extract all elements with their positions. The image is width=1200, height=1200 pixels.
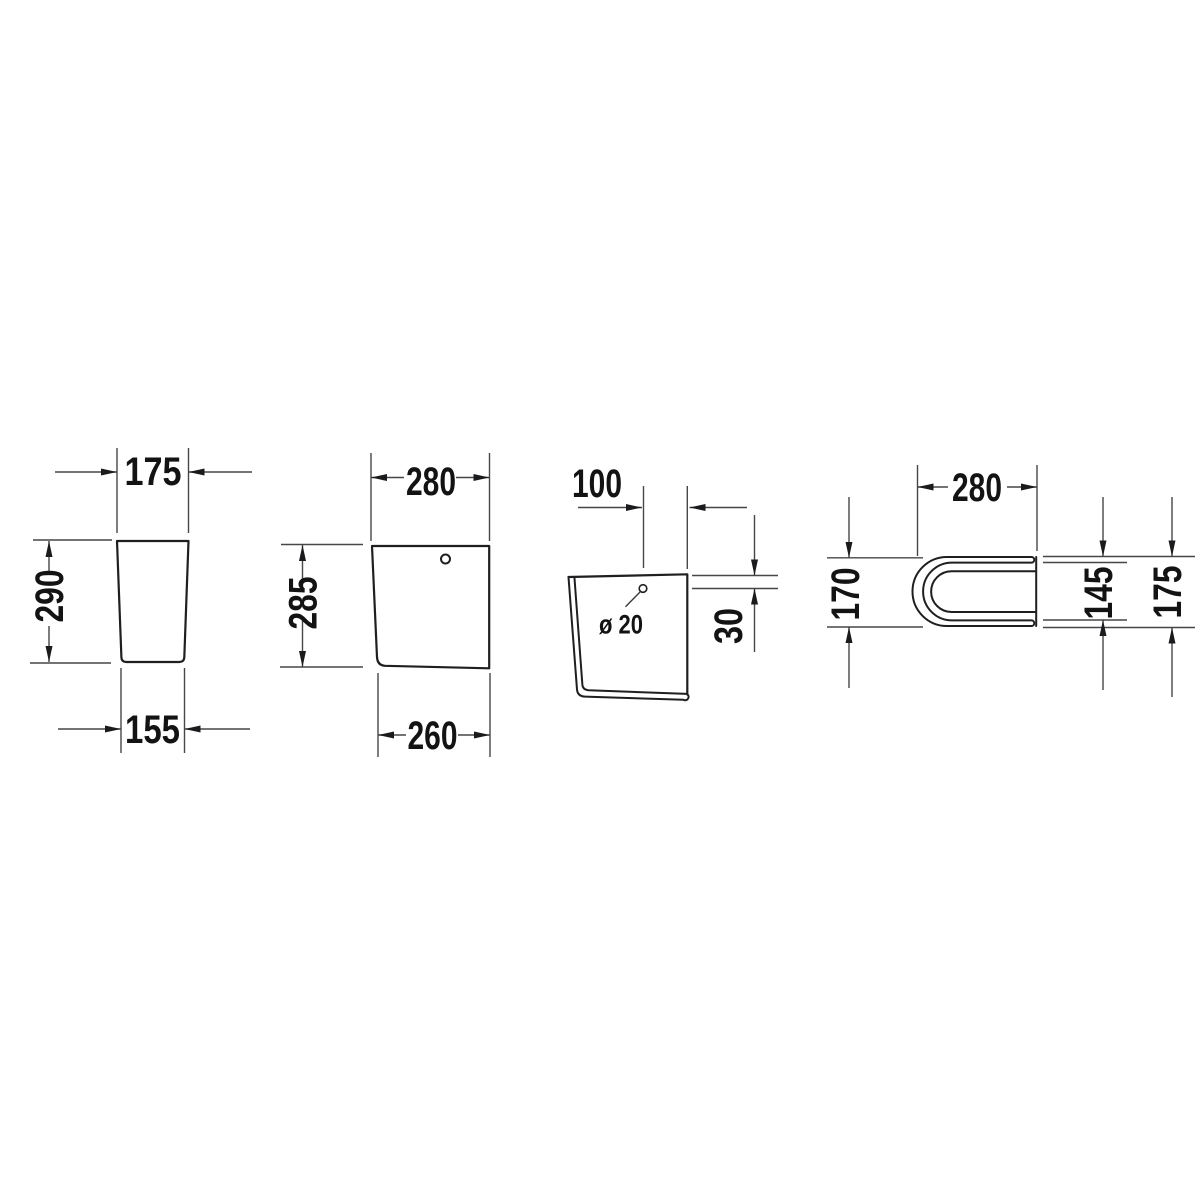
section-view: ø 20 100 30 <box>569 462 779 700</box>
side-view-outline <box>372 546 489 668</box>
fixing-hole <box>639 585 647 593</box>
dimension-drawing-canvas: 175 290 155 280 285 260 <box>0 0 1200 1200</box>
dim-label-front-width-bottom: 155 <box>125 708 180 752</box>
hole-leader-line <box>626 592 641 607</box>
dim-label-top-width: 280 <box>952 466 1002 510</box>
fixing-hole <box>441 555 450 564</box>
dim-label-hole-diameter: ø 20 <box>599 610 643 640</box>
side-view: 280 285 260 <box>280 453 490 758</box>
front-view: 175 290 155 <box>28 448 252 753</box>
top-view: 280 170 145 175 <box>824 465 1195 697</box>
dim-label-side-width-bottom: 260 <box>408 714 458 758</box>
dim-label-top-depth-inner: 145 <box>1077 567 1121 620</box>
dim-label-front-width-top: 175 <box>125 450 182 494</box>
drawing-svg: 175 290 155 280 285 260 <box>0 0 1200 1200</box>
dim-label-hole-depth: 30 <box>707 608 751 644</box>
dim-label-side-height: 285 <box>282 577 326 630</box>
front-view-outline <box>117 541 189 662</box>
dim-label-hole-offset: 100 <box>572 462 622 506</box>
dim-label-front-height: 290 <box>28 570 72 623</box>
top-view-inner-contour <box>931 571 1036 612</box>
dim-label-top-depth-outer: 170 <box>824 568 868 621</box>
dim-label-top-depth-total: 175 <box>1146 566 1190 619</box>
dim-label-side-width-top: 280 <box>406 460 456 504</box>
